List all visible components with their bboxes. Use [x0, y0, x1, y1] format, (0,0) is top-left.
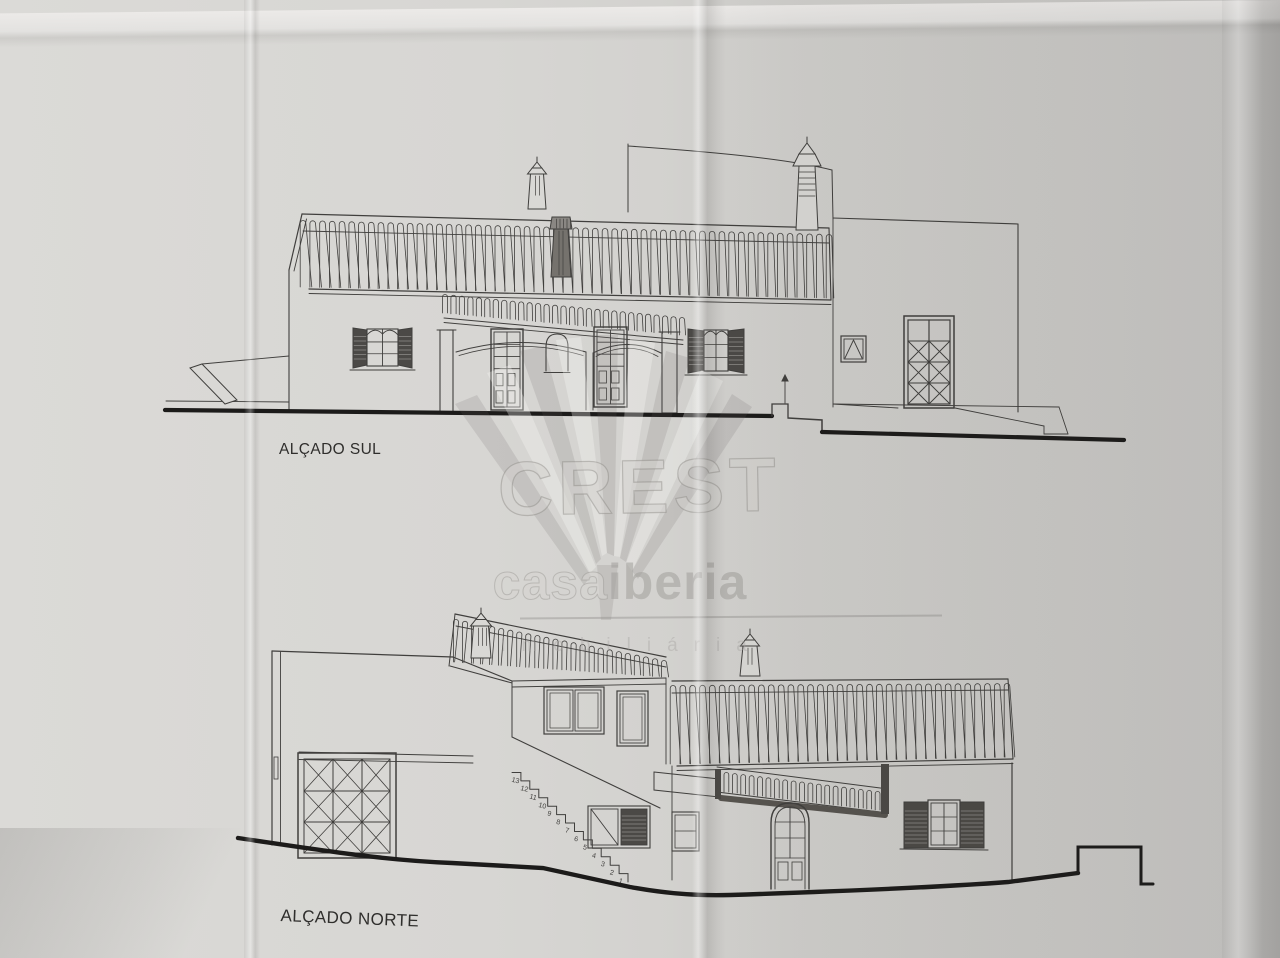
crest-watermark-title: CREST [497, 442, 762, 534]
stair-step-number: 7 [564, 827, 570, 835]
stair-step-number: 12 [520, 785, 529, 794]
stair-step-number: 6 [573, 836, 579, 844]
watermark-brand-casa: casa [493, 554, 608, 610]
stair-step-number: 11 [529, 794, 538, 803]
stair-step-number: 13 [511, 777, 520, 786]
stair-step-number: 2 [609, 869, 615, 877]
stair-step-number: 5 [582, 844, 588, 852]
stair-step-number: 4 [591, 853, 597, 861]
south-elevation-label: ALÇADO SUL [279, 441, 381, 459]
watermark-subtitle: imobiliária [448, 635, 816, 657]
stair-step-number: 3 [600, 861, 606, 869]
stair-step-number: 9 [546, 810, 552, 818]
watermark-brand-iberia: iberia [608, 554, 747, 610]
casaiberia-watermark: casaiberia [460, 553, 780, 611]
stair-step-number: 8 [555, 819, 561, 827]
architectural-plan-photo: 13121110987654321 CREST casaiberia imobi… [0, 0, 1280, 958]
stair-step-number: 10 [538, 802, 547, 811]
